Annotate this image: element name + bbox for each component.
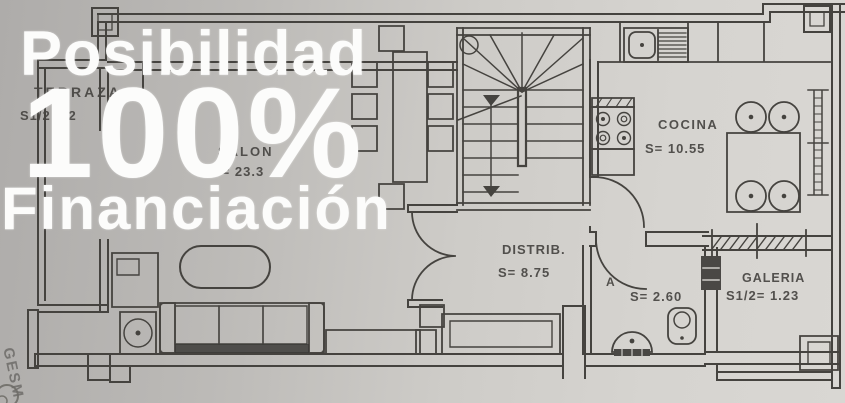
floorplan-image: TERRAZA S1/2 = 2 SALON S= 23.3 COCINA S=… <box>0 0 845 403</box>
kitchen-sink <box>624 28 688 62</box>
kitchen-window <box>808 90 828 195</box>
dining-table <box>393 52 427 182</box>
distrib-area: S= 8.75 <box>498 265 550 280</box>
cocina-area: S= 10.55 <box>645 141 705 156</box>
distrib-label: DISTRIB. <box>502 242 566 257</box>
tv-unit <box>112 253 158 354</box>
aseo-label: A <box>606 275 617 289</box>
staircase <box>457 28 590 210</box>
cocina-label: COCINA <box>658 117 718 132</box>
watermark-line-financiacion: Financiación <box>1 179 392 239</box>
galeria-label: GALERIA <box>742 271 805 285</box>
aseo-area: S= 2.60 <box>630 289 682 304</box>
galeria-area: S1/2= 1.23 <box>726 288 799 303</box>
side-cabinet <box>326 330 420 354</box>
door-arc-bath <box>596 239 646 289</box>
door-arc-kitchen <box>594 177 644 227</box>
double-door-salon <box>412 212 455 300</box>
kitchen-chairs <box>736 102 799 211</box>
hall-bench <box>416 305 560 354</box>
interior-walls <box>408 60 832 354</box>
sofa <box>160 303 324 353</box>
coffee-table <box>180 246 270 288</box>
washbasin <box>612 332 652 356</box>
window-galeria <box>712 224 806 258</box>
toilet <box>668 308 696 344</box>
